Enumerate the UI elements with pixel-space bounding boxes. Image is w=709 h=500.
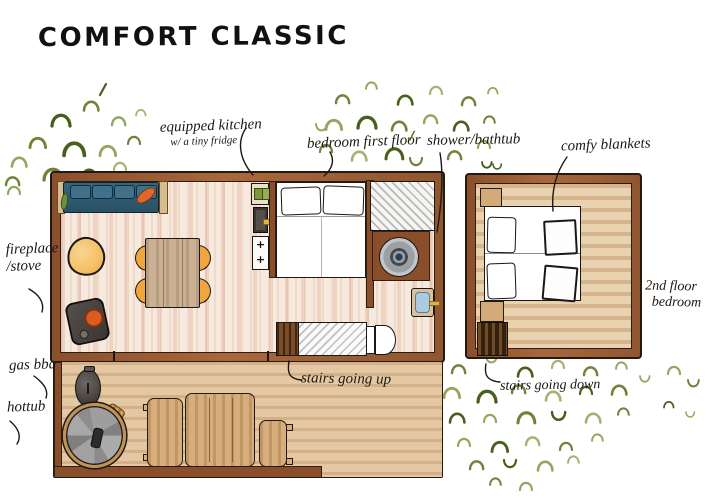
bathtub	[370, 181, 435, 231]
sofa-cushion	[70, 185, 91, 199]
duvet-crease	[321, 216, 322, 277]
label-hottub: hottub	[7, 398, 46, 416]
stove-knob	[79, 329, 90, 340]
label-gas-bbq: gas bbq	[9, 356, 57, 374]
sofa-nook-wall-right	[159, 181, 168, 214]
bush-cluster-bottom-right	[444, 356, 699, 490]
lounge-bench-wide	[185, 393, 255, 467]
page-title: COMFORT CLASSIC	[38, 21, 349, 53]
lounge-bench	[147, 398, 183, 467]
leader-hottub	[10, 421, 19, 444]
pillow	[487, 217, 517, 254]
hottub-seat	[90, 427, 104, 449]
kitchen-counter	[253, 207, 268, 233]
nightstand	[480, 301, 504, 322]
toilet	[366, 324, 397, 356]
label-stairs-up: stairs going up	[301, 370, 391, 388]
sofa	[63, 182, 159, 213]
check-icon: ✓	[403, 126, 421, 148]
sofa-cushion	[114, 185, 135, 199]
label-comfy-blankets: comfy blankets	[561, 135, 651, 155]
twin-beds	[484, 206, 581, 301]
kitchen-fridge	[251, 183, 269, 205]
toilet-tank	[366, 326, 375, 354]
pillow	[323, 185, 365, 215]
label-shower-bathtub: shower/bathtub	[427, 131, 521, 149]
shower	[379, 237, 419, 277]
comfy-blanket	[542, 265, 579, 303]
pillow	[281, 186, 322, 215]
hottub	[63, 403, 126, 468]
sink-tap	[429, 301, 440, 306]
floor-plan-canvas: + +	[0, 0, 709, 500]
kitchen-cooktop: + +	[252, 236, 269, 270]
nightstand	[480, 188, 502, 207]
sofa-cushion	[92, 185, 113, 199]
stairs-up	[276, 322, 367, 356]
deck-wall-left	[54, 362, 62, 478]
dining-table	[145, 238, 200, 308]
stairs-down	[477, 322, 508, 356]
second-floor-cabin	[465, 173, 642, 359]
label-second-floor-bedroom: 2nd floor bedroom	[645, 279, 702, 311]
bush-cluster-top-middle	[316, 82, 501, 169]
burner-icon: +	[253, 252, 268, 267]
label-fireplace-stove: fireplace /stove	[5, 240, 59, 275]
bbq-handle	[84, 366, 95, 372]
label-equipped-kitchen: equipped kitchen w/ a tiny fridge	[160, 116, 263, 149]
toilet-bowl	[375, 325, 396, 355]
sink-basin	[415, 292, 430, 313]
main-cabin: + +	[50, 171, 445, 363]
label-stairs-down: stairs going down	[500, 377, 601, 394]
gas-bbq	[75, 369, 101, 407]
comfy-blanket	[543, 219, 578, 256]
side-bench	[259, 420, 287, 467]
bench-leg	[286, 458, 293, 465]
stair-treads	[277, 323, 299, 355]
burner-icon: +	[253, 237, 268, 252]
bench-leg	[286, 424, 293, 431]
leader-gas-bbq	[34, 376, 47, 398]
leader-stairs-down	[485, 364, 500, 382]
wall-kitchen-bedroom	[269, 181, 276, 278]
sink	[411, 288, 434, 317]
leader-fireplace-stove	[29, 289, 43, 312]
double-bed	[276, 182, 366, 278]
pillow	[486, 263, 516, 300]
shower-niche	[372, 231, 430, 281]
stove-burner	[83, 307, 106, 330]
